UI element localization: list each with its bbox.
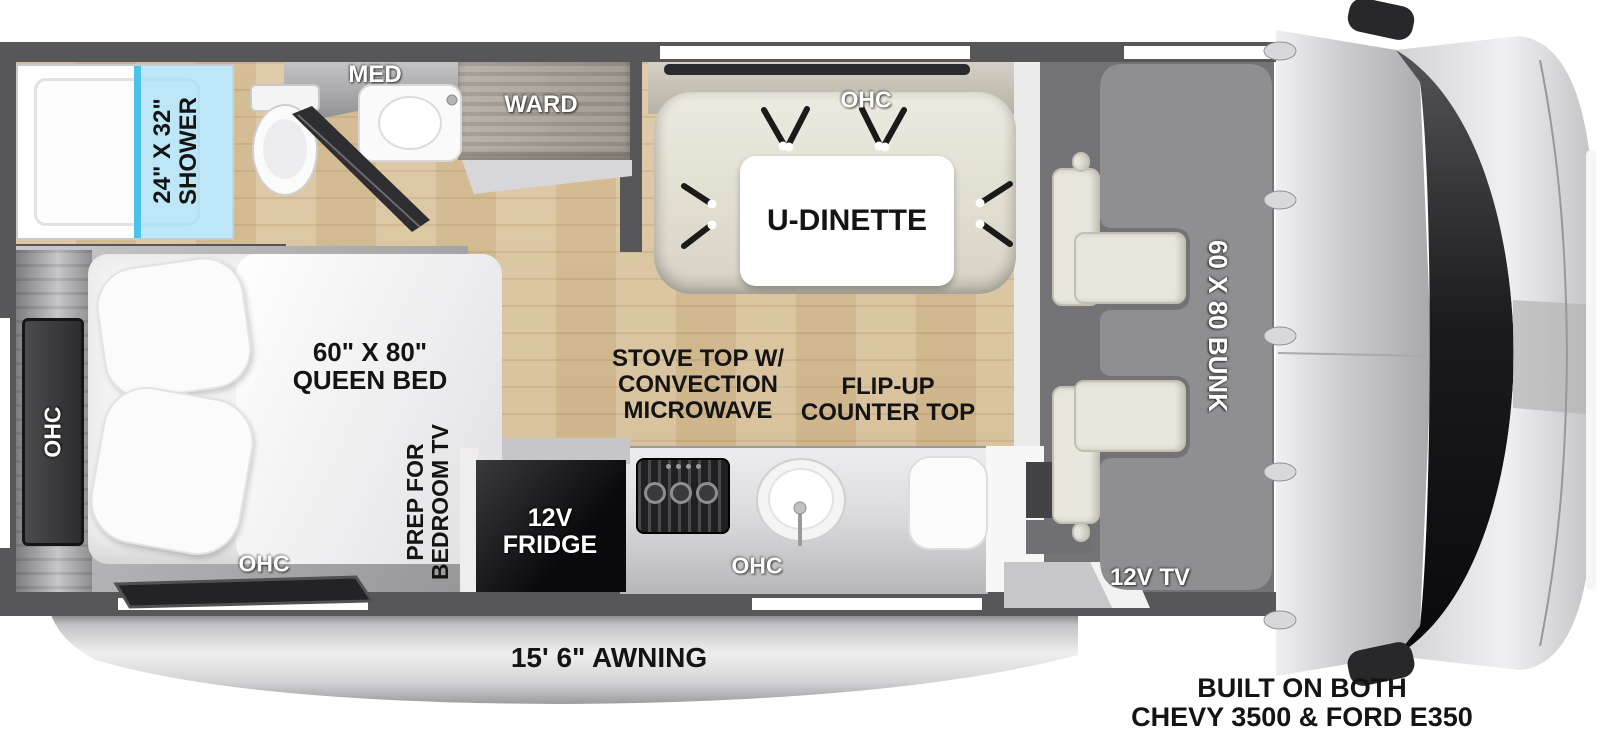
fridge-label: 12VFRIDGE — [503, 505, 597, 559]
bunk-label: 60 X 80 BUNK — [1204, 240, 1232, 412]
cab-grille-band — [1513, 300, 1596, 415]
cab-windshield — [1396, 50, 1514, 656]
kitchen-ohc-label: OHC — [731, 554, 782, 579]
flip-up-counter — [908, 456, 988, 550]
med-label: MED — [348, 62, 401, 88]
flip-counter-label: FLIP-UPCOUNTER TOP — [801, 374, 975, 426]
passenger-seat-cushion — [1074, 380, 1186, 452]
shower-glass-edge — [134, 66, 141, 238]
driver-headrest — [1072, 152, 1090, 172]
bedroom-ohc-left-label: OHC — [41, 406, 66, 457]
burner — [670, 482, 692, 504]
pillow — [83, 380, 260, 562]
kitchen-sink-basin — [768, 468, 834, 530]
window-bedroom-bottom — [118, 598, 368, 610]
stove-knob — [686, 464, 691, 469]
chassis-label: BUILT ON BOTHCHEVY 3500 & FORD E350 — [1131, 674, 1473, 732]
toilet-bowl — [263, 119, 307, 179]
cab-hood-seam — [1540, 60, 1567, 646]
cab-bumper — [1586, 150, 1596, 590]
rv-floorplan: 24" X 32"SHOWER MED WARD OHC U-DINETTE 6… — [0, 0, 1600, 743]
cab-cowl — [1276, 30, 1431, 676]
burner — [696, 482, 718, 504]
cab-hood — [1396, 36, 1596, 670]
u-dinette-label: U-DINETTE — [767, 205, 927, 237]
tv-prep-label: PREP FORBEDROOM TV — [403, 424, 453, 580]
bath-sink — [378, 96, 442, 150]
bedroom-ohc-bottom-label: OHC — [238, 552, 289, 577]
stove-label: STOVE TOP W/CONVECTIONMICROWAVE — [612, 346, 784, 424]
pillow — [92, 252, 257, 403]
window-overcab — [1124, 46, 1272, 59]
stove-knob — [696, 464, 701, 469]
cab-cowl-seam — [1278, 353, 1430, 356]
ward-label: WARD — [504, 92, 577, 118]
dinette-window-bar — [664, 64, 970, 75]
cab-tv-label: 12V TV — [1110, 565, 1190, 591]
shower-label: 24" X 32"SHOWER — [150, 97, 202, 205]
burner — [644, 482, 666, 504]
wall-top — [8, 42, 1276, 62]
awning-label: 15' 6" AWNING — [511, 643, 707, 673]
stove-knob — [666, 464, 671, 469]
stove-knob — [676, 464, 681, 469]
window-dinette — [660, 46, 970, 59]
side-mirror-top — [1345, 0, 1417, 42]
dinette-ohc-label: OHC — [840, 88, 891, 113]
window-kitchen — [752, 598, 982, 610]
window-bedroom-left — [0, 318, 10, 548]
driver-seat-cushion — [1074, 232, 1186, 304]
passenger-headrest — [1072, 522, 1090, 542]
queen-bed-label: 60" X 80"QUEEN BED — [293, 338, 448, 394]
